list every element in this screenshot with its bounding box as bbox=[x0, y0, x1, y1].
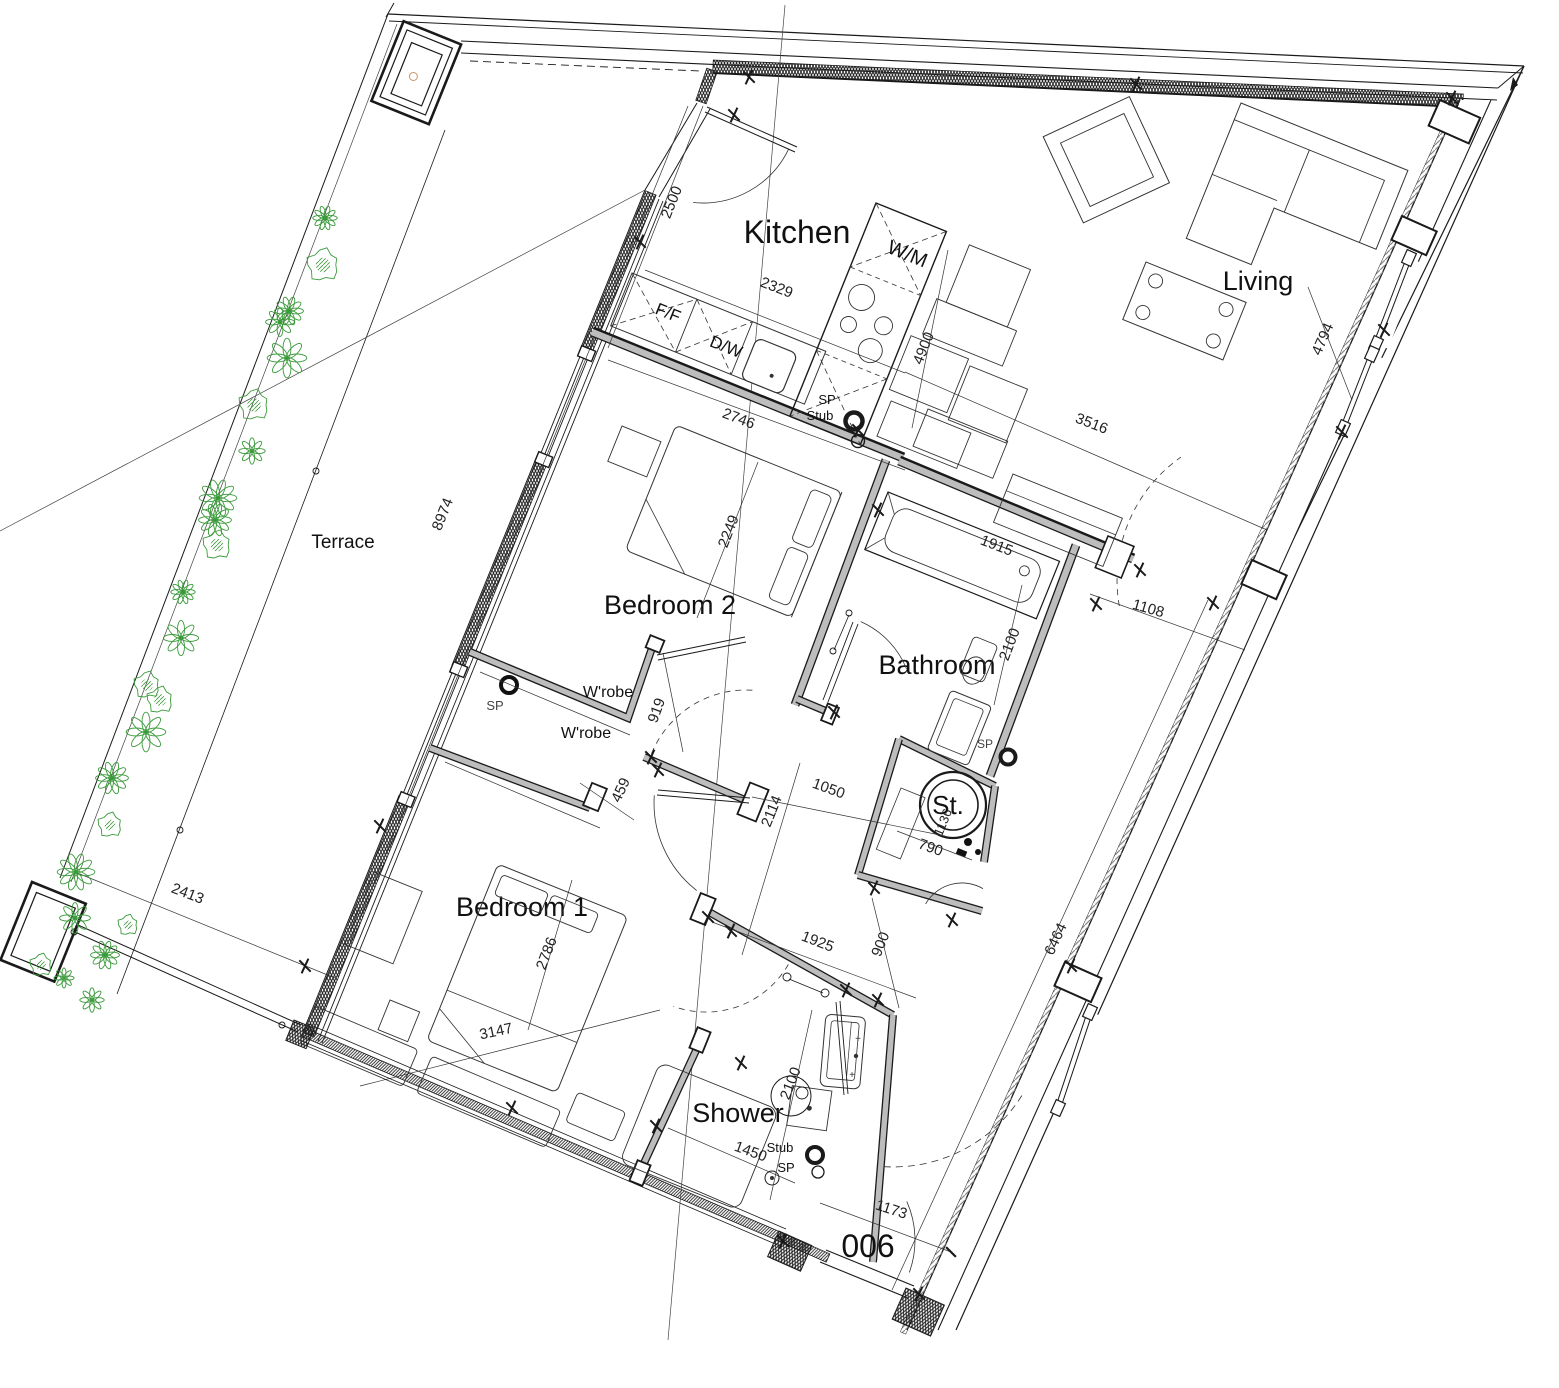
svg-text:Bedroom 1: Bedroom 1 bbox=[456, 892, 588, 922]
svg-text:SP: SP bbox=[977, 737, 993, 751]
svg-text:Kitchen: Kitchen bbox=[744, 214, 851, 250]
svg-text:SP: SP bbox=[486, 698, 503, 713]
svg-text:SP: SP bbox=[818, 392, 835, 407]
svg-text:Stub: Stub bbox=[807, 408, 834, 423]
svg-text:Living: Living bbox=[1223, 266, 1294, 296]
svg-text:W'robe: W'robe bbox=[583, 684, 633, 701]
svg-text:SP: SP bbox=[777, 1160, 794, 1175]
svg-text:006: 006 bbox=[841, 1228, 894, 1264]
svg-text:+: + bbox=[855, 1034, 861, 1045]
svg-text:+: + bbox=[849, 1070, 855, 1081]
svg-text:Shower: Shower bbox=[692, 1098, 784, 1128]
svg-text:Bathroom: Bathroom bbox=[878, 650, 995, 680]
svg-text:Terrace: Terrace bbox=[311, 532, 374, 553]
svg-text:Bedroom 2: Bedroom 2 bbox=[604, 590, 736, 620]
svg-text:Stub: Stub bbox=[767, 1140, 794, 1155]
svg-text:W'robe: W'robe bbox=[561, 725, 611, 742]
